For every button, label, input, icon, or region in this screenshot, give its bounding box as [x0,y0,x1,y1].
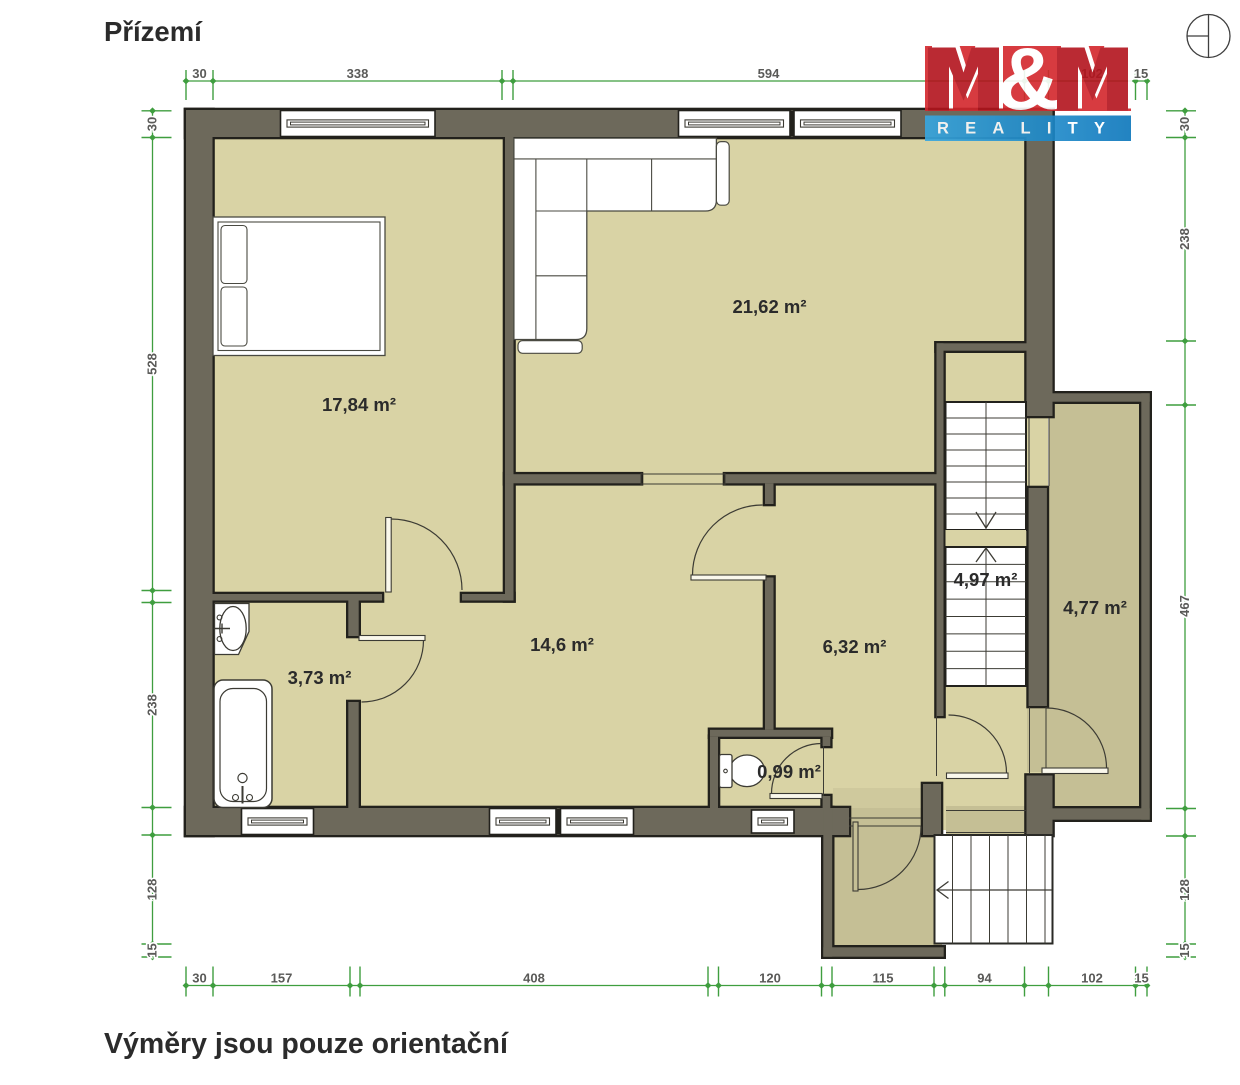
svg-text:Výměry jsou pouze orientační: Výměry jsou pouze orientační [104,1028,509,1060]
svg-text:4,77 m²: 4,77 m² [1063,597,1127,618]
svg-text:15: 15 [1134,971,1148,986]
svg-text:30: 30 [192,971,206,986]
svg-text:15: 15 [1177,943,1192,957]
svg-text:30: 30 [1177,117,1192,131]
svg-text:102: 102 [1081,971,1103,986]
svg-text:408: 408 [523,971,545,986]
svg-text:30: 30 [145,117,160,131]
svg-text:238: 238 [145,694,160,716]
svg-text:528: 528 [145,353,160,375]
svg-text:94: 94 [977,971,992,986]
svg-text:120: 120 [759,971,781,986]
svg-text:157: 157 [271,971,293,986]
svg-text:115: 115 [873,971,894,986]
svg-text:&: & [996,29,1060,128]
svg-text:594: 594 [758,66,780,81]
svg-text:238: 238 [1177,228,1192,250]
svg-text:21,62 m²: 21,62 m² [732,296,806,317]
svg-text:3,73 m²: 3,73 m² [288,667,352,688]
svg-text:128: 128 [145,879,160,901]
svg-text:14,6 m²: 14,6 m² [530,634,594,655]
svg-text:0,99 m²: 0,99 m² [757,761,821,782]
svg-text:4,97 m²: 4,97 m² [954,569,1018,590]
svg-text:30: 30 [192,66,206,81]
svg-text:17,84 m²: 17,84 m² [322,394,396,415]
svg-text:Přízemí: Přízemí [104,16,203,47]
svg-text:15: 15 [1134,66,1148,81]
svg-text:6,32 m²: 6,32 m² [823,636,887,657]
svg-text:128: 128 [1177,879,1192,901]
svg-text:338: 338 [347,66,369,81]
svg-text:15: 15 [145,943,160,957]
svg-text:467: 467 [1177,595,1192,617]
